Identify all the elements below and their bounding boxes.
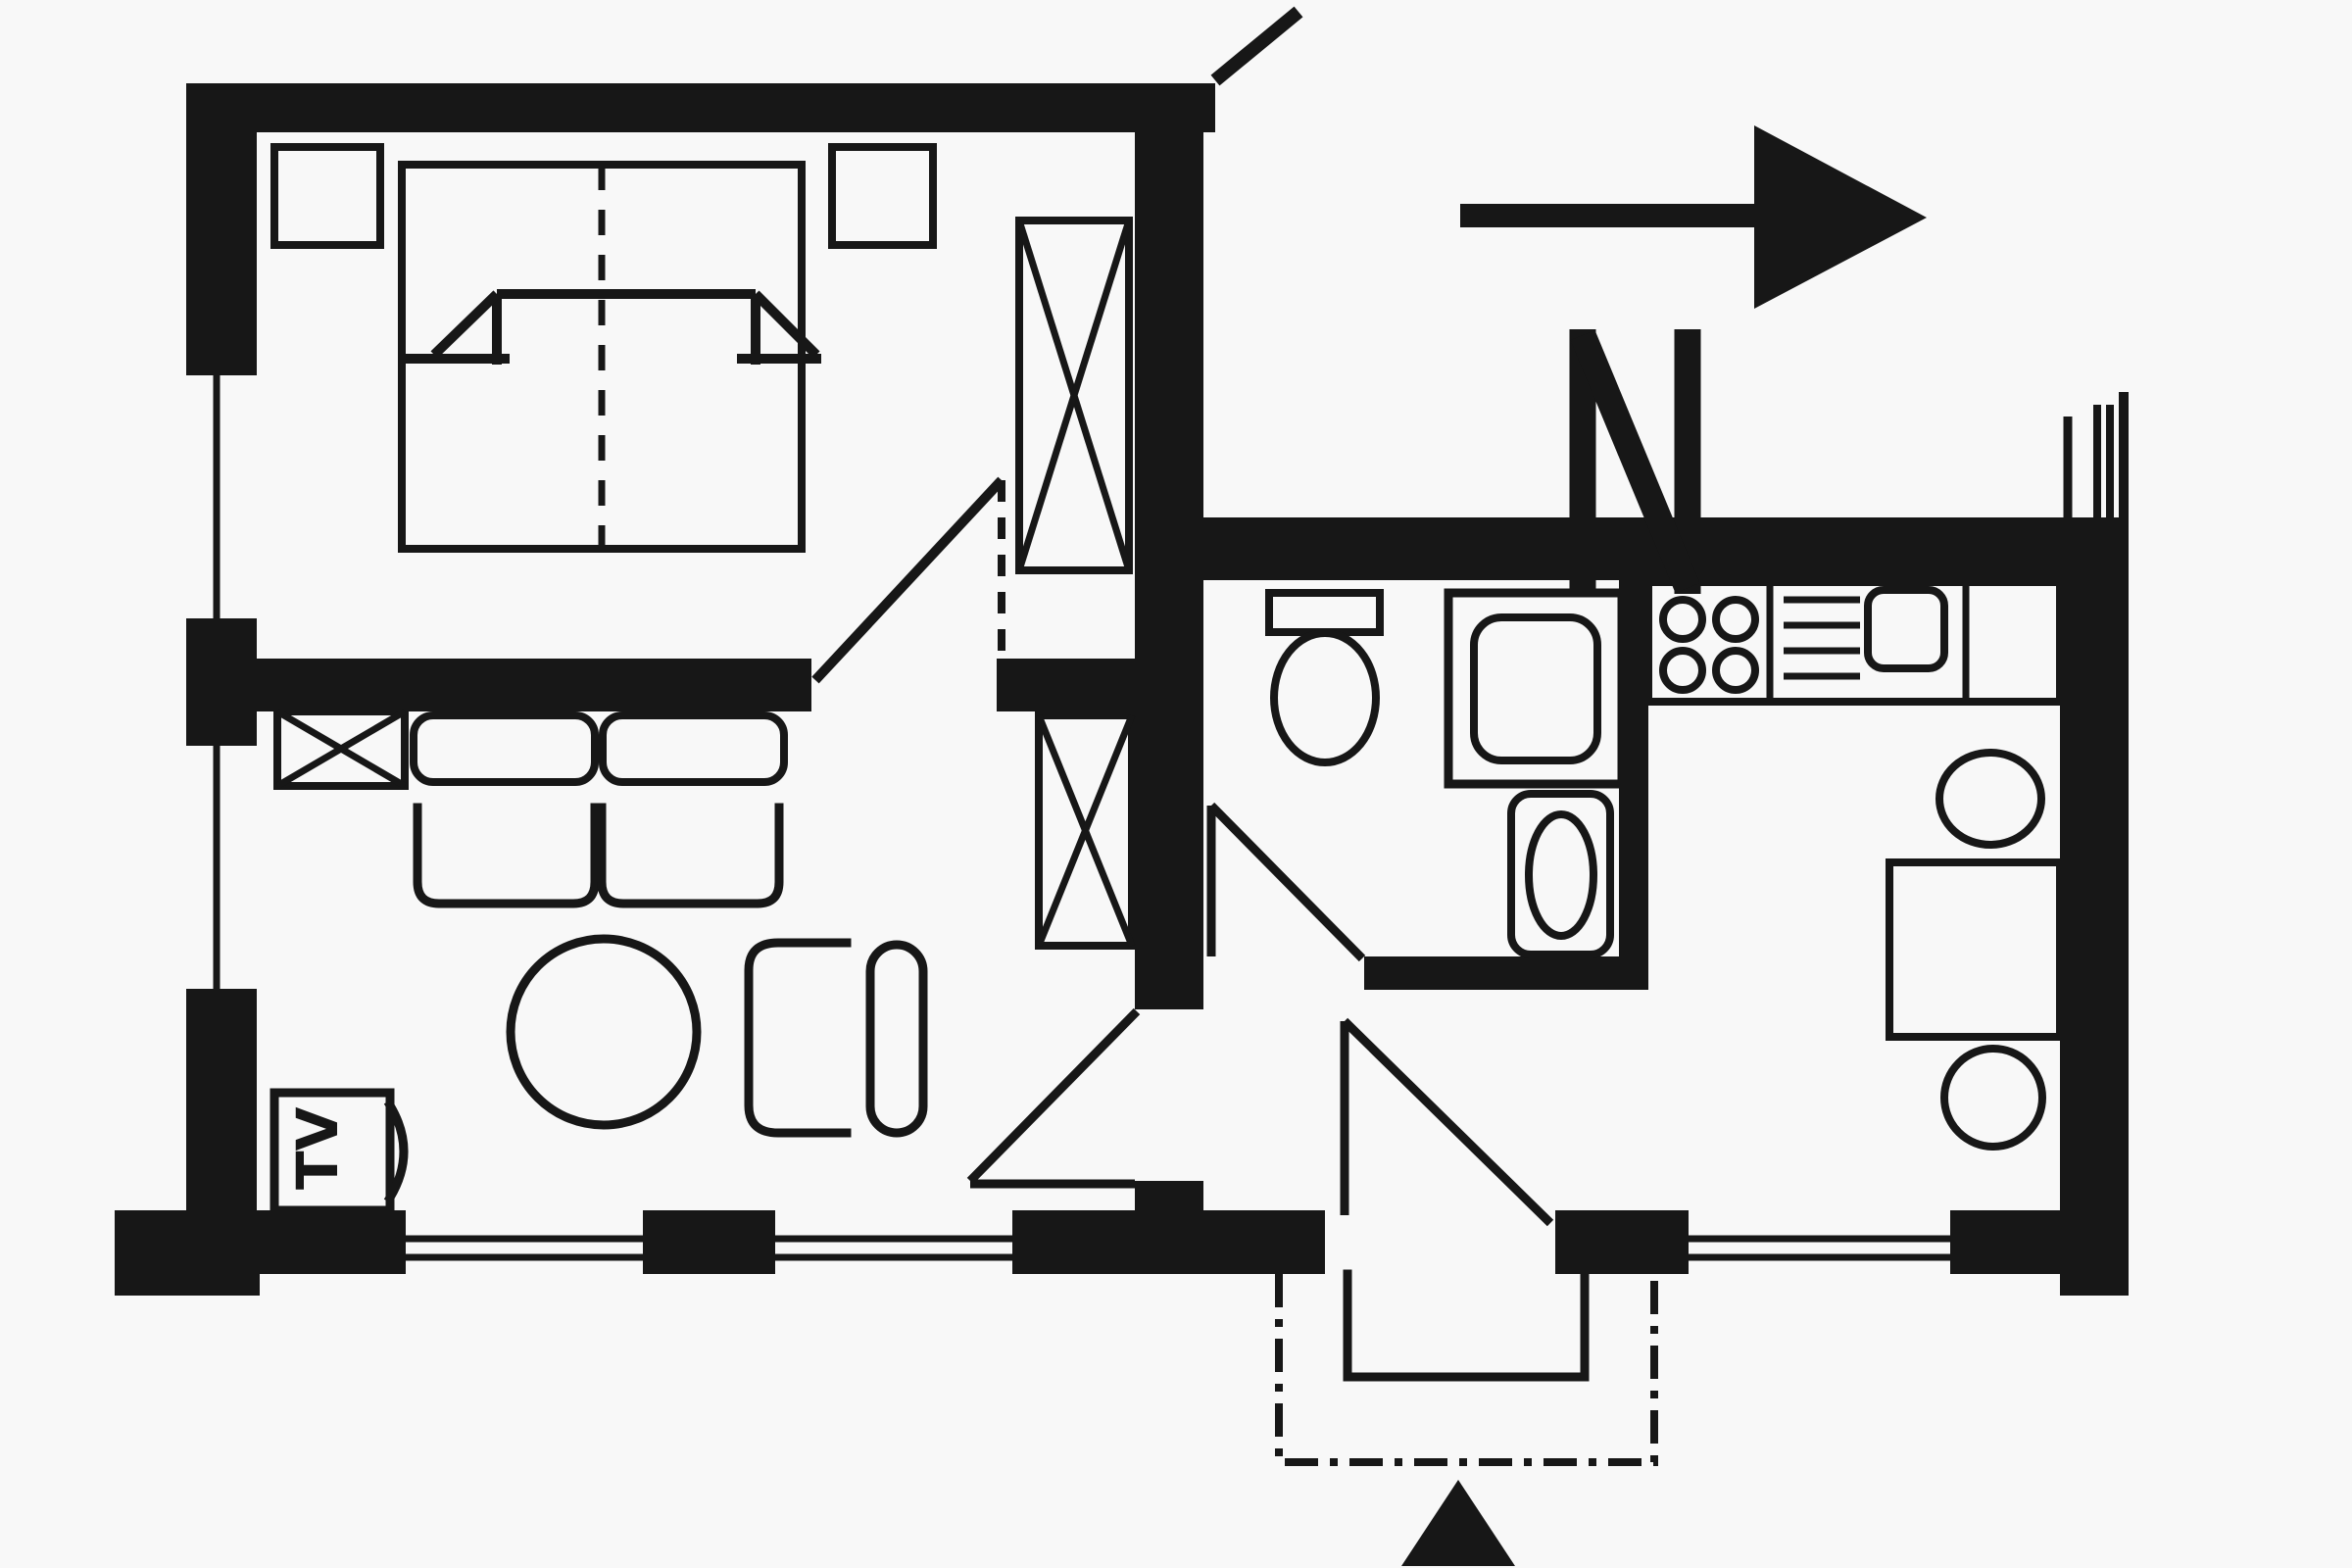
fold-right-diagonal <box>756 294 816 355</box>
north-arrow-shaft <box>1460 204 1766 227</box>
wall-central-bottom-stub <box>1135 1181 1203 1212</box>
entrance-door-swing <box>1345 1021 1550 1223</box>
window-cut-left-1 <box>182 375 261 618</box>
window-cut-left-2 <box>182 746 261 989</box>
hall <box>970 806 1550 1223</box>
bedroom-door-leaf <box>815 480 1002 680</box>
bedroom-wardrobe-icon <box>1019 220 1129 570</box>
wall-bathroom-bottom <box>1364 956 1648 990</box>
bedroom <box>274 147 1129 680</box>
dining-table <box>1889 862 2060 1037</box>
outside-step <box>1347 1274 1585 1377</box>
wall-divider-right-stub <box>997 659 1135 711</box>
toilet-icon <box>1269 593 1380 762</box>
tv-set: TV <box>274 1093 404 1210</box>
north-arrow-head <box>1754 125 1927 309</box>
round-table <box>511 939 697 1125</box>
wall-central <box>1135 83 1203 1009</box>
nightstand-left <box>274 147 380 245</box>
sofa-seat-left <box>417 808 595 904</box>
floor-plan-drawing: TV <box>0 0 2352 1568</box>
bath-door-leaf <box>1211 806 1362 958</box>
entry-door-chord <box>1345 1021 1550 1223</box>
nightstand-right <box>832 147 933 245</box>
basin-bowl <box>1529 814 1593 936</box>
side-cabinet-icon <box>277 711 405 786</box>
blanket-fold-marks <box>404 294 821 365</box>
dining-set <box>1889 753 2060 1147</box>
lounge-chair <box>870 945 923 1133</box>
chair-top <box>1939 753 2041 845</box>
sofa <box>414 715 784 904</box>
sofa-back-left <box>414 715 595 782</box>
continuation-hatch-marks <box>2068 392 2124 517</box>
wall-right <box>2060 517 2129 1296</box>
bathroom-door-swing <box>1211 806 1362 958</box>
kitchen <box>1648 582 2060 1147</box>
sofa-back-right <box>603 715 784 782</box>
entrance-porch <box>1279 1274 1654 1566</box>
living-room: TV <box>274 711 1132 1210</box>
fold-left-diagonal <box>434 294 497 355</box>
floor-plan-page: TV <box>0 0 2352 1568</box>
chair-bottom <box>1944 1049 2042 1147</box>
sink-basin <box>1868 590 1944 668</box>
entry-arrow-triangle <box>1401 1480 1515 1566</box>
toilet-tank <box>1269 593 1380 632</box>
living-door-leaf <box>970 1011 1137 1181</box>
sink-icon <box>1784 590 1944 676</box>
tv-label: TV <box>284 1106 351 1190</box>
sofa-seat-right <box>602 808 779 904</box>
toilet-bowl <box>1274 633 1376 762</box>
wall-divider-left-part <box>257 659 811 711</box>
entrance-door-cut <box>1325 1210 1555 1274</box>
north-letter: N <box>1529 319 1775 661</box>
wall-left <box>186 83 257 1210</box>
wall-corner-bottom-left <box>115 1210 260 1296</box>
wall-top <box>186 83 1215 132</box>
living-wardrobe-icon <box>1039 715 1132 946</box>
bedroom-door-swing <box>815 480 1002 680</box>
living-room-door-swing <box>970 1011 1137 1184</box>
porch-dash-dot-outline <box>1279 1274 1654 1462</box>
armchair <box>749 943 847 1133</box>
wall-break-tick <box>1215 12 1298 80</box>
basin-icon <box>1511 794 1610 955</box>
